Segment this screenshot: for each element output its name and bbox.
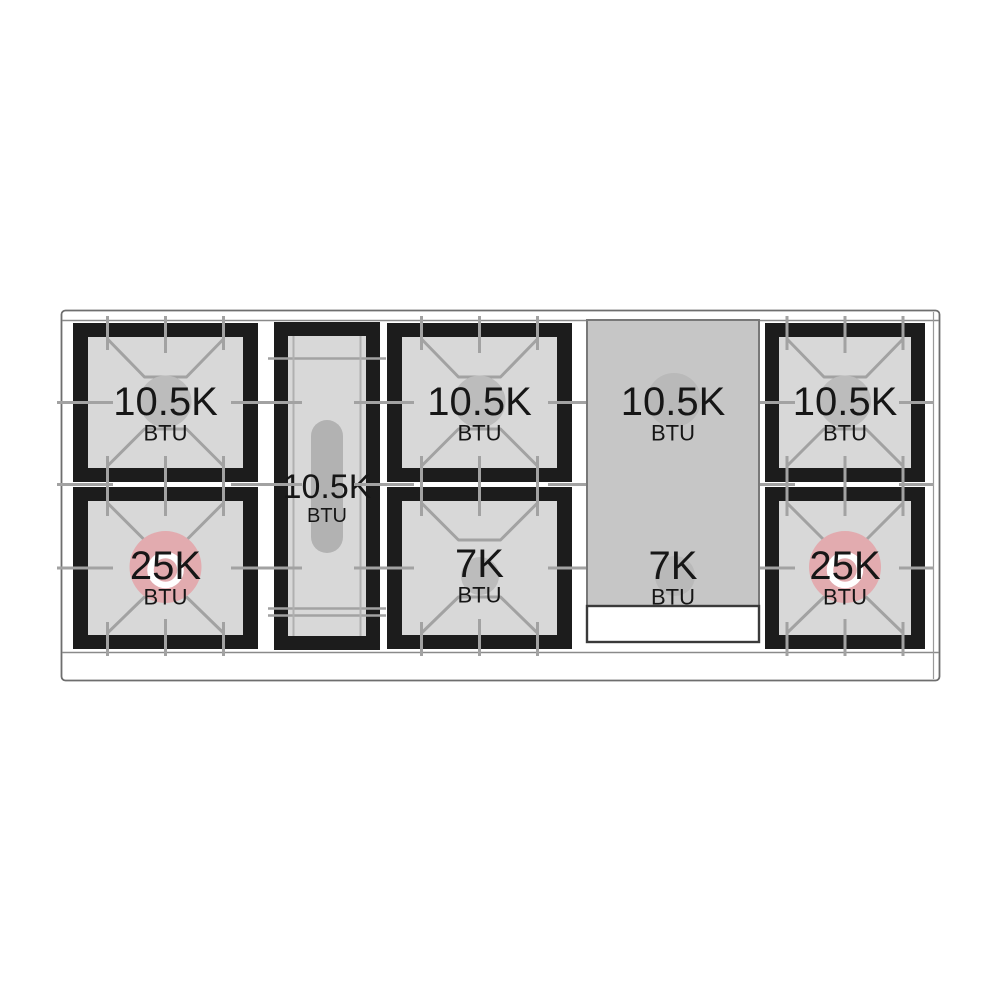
btu-unit-label: BTU — [144, 585, 188, 610]
btu-unit-label: BTU — [458, 421, 502, 446]
btu-value-label: 25K — [130, 544, 201, 588]
btu-unit-label: BTU — [823, 585, 867, 610]
btu-value-label: 10.5K — [113, 380, 218, 424]
btu-unit-label: BTU — [144, 421, 188, 446]
section-griddle-zone: 10.5K BTU 7K BTU — [587, 320, 759, 642]
btu-unit-label: BTU — [458, 583, 502, 608]
btu-unit-label: BTU — [823, 421, 867, 446]
griddle-drip-tray — [587, 606, 759, 642]
page: 10.5K BTU 25K BTU 10.5K BTU 10.5K BTU 7K… — [0, 0, 1000, 1000]
btu-value-label: 7K — [649, 544, 698, 588]
btu-value-label: 7K — [455, 542, 504, 586]
cooktop-diagram: 10.5K BTU 25K BTU 10.5K BTU 10.5K BTU 7K… — [0, 0, 1000, 1000]
btu-unit-label: BTU — [307, 505, 347, 527]
btu-value-label: 10.5K — [793, 380, 898, 424]
btu-value-label: 10.5K — [621, 380, 726, 424]
btu-value-label: 25K — [809, 544, 880, 588]
btu-unit-label: BTU — [651, 421, 695, 446]
btu-unit-label: BTU — [651, 585, 695, 610]
btu-value-label: 10.5K — [427, 380, 532, 424]
btu-value-label: 10.5K — [283, 468, 372, 506]
